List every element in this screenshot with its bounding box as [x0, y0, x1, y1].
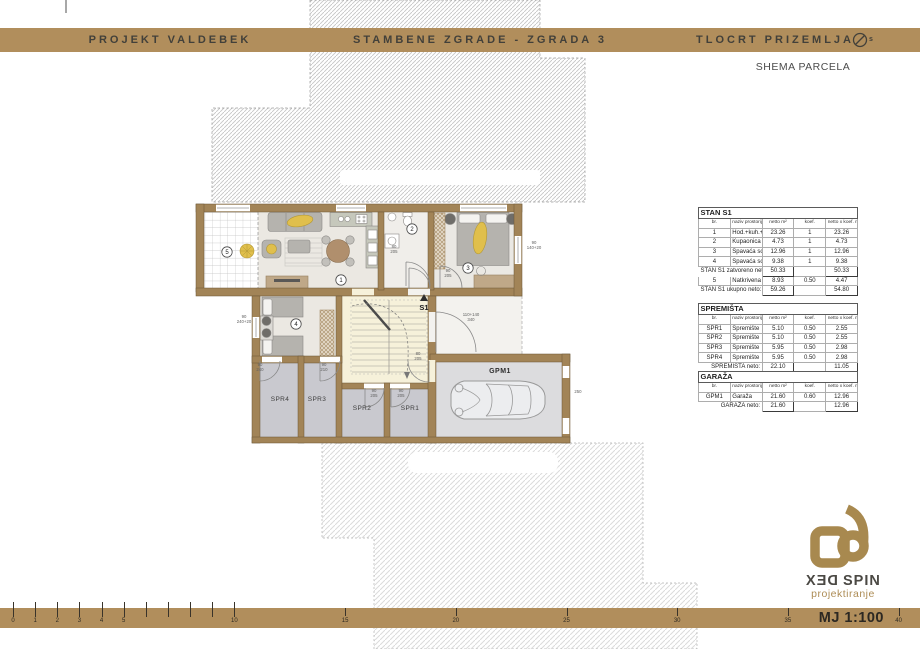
scale-label: MJ 1:100 — [794, 610, 884, 626]
table-cell: Natkrivena terasa — [730, 276, 762, 286]
dimension-label: 90140+20 — [527, 240, 542, 250]
scale-tick — [788, 608, 789, 616]
table-cell: 2.98 — [826, 343, 858, 353]
lamp — [262, 317, 271, 326]
table-cell: netto m² — [762, 383, 794, 393]
table-cell: SPR3 — [699, 343, 731, 353]
table-cell: 54.80 — [826, 286, 858, 296]
table-cell: br. — [699, 383, 731, 393]
building-title: STAMBENE ZGRADE - ZGRADA 3 — [335, 34, 625, 46]
table-cell: 5.10 — [762, 324, 794, 334]
table-cell: netto m² — [762, 315, 794, 325]
scale-tick-label: 40 — [895, 618, 902, 624]
scale-bar: 01234510152025303540 MJ 1:100 — [0, 608, 920, 628]
table-cell: 1 — [699, 228, 731, 238]
table-cell: 21.60 — [762, 392, 794, 402]
unit-label: S1 — [419, 303, 428, 312]
table-cell: 1 — [794, 257, 826, 267]
wardrobe — [320, 310, 334, 356]
table-cell: STAN S1 zatvoreno neto: — [699, 266, 763, 276]
table-cell: 50.33 — [762, 266, 794, 276]
room-label-spr4: SPR4 — [271, 396, 290, 403]
table-cell: 9.38 — [762, 257, 794, 267]
table-cell: 5.95 — [762, 353, 794, 363]
table-cell: SPR1 — [699, 324, 731, 334]
company-logo: DEX SPIN projektiranje — [797, 504, 889, 600]
table-cell — [794, 266, 826, 276]
room-label-spr2: SPR2 — [353, 405, 372, 412]
chaise — [288, 240, 310, 253]
scale-tick-label: 3 — [78, 618, 81, 624]
project-title: PROJEKT VALDEBEK — [55, 34, 285, 46]
table-cell: 5.10 — [762, 334, 794, 344]
table-cell — [794, 402, 826, 412]
table-cell: naziv prostorije — [730, 219, 762, 229]
dimension-label: 250 — [574, 389, 582, 394]
scale-tick — [35, 602, 36, 617]
table-cell: 50.33 — [826, 266, 858, 276]
table-cell: 21.60 — [762, 402, 794, 412]
scale-tick — [345, 608, 346, 616]
desk — [474, 275, 516, 289]
scale-tick — [13, 602, 14, 617]
table-cell: 0.50 — [794, 353, 826, 363]
table-cell: GPM1 — [699, 392, 731, 402]
table-cell: 8.93 — [762, 276, 794, 286]
table-cell: 3 — [699, 247, 731, 257]
scale-tick-label: 10 — [231, 618, 238, 624]
table-cell: naziv prostorije — [730, 315, 762, 325]
room-label-gpm1: GPM1 — [489, 368, 511, 375]
scale-tick-label: 1 — [33, 618, 36, 624]
table-cell: 0.60 — [794, 392, 826, 402]
tv-cabinet — [266, 276, 308, 289]
spr1-floor — [390, 389, 428, 437]
table-cell: netto x koef. m² — [826, 219, 858, 229]
chair — [346, 236, 354, 244]
table-cell: 2 — [699, 238, 731, 248]
table-cell: SPR4 — [699, 353, 731, 363]
table-cell: 2.55 — [826, 324, 858, 334]
table-cell: 4.47 — [826, 276, 858, 286]
table-cell: 4 — [699, 257, 731, 267]
table-cell: koef. — [794, 383, 826, 393]
scale-tick-label: 30 — [674, 618, 681, 624]
table-cell: SPR2 — [699, 334, 731, 344]
table-cell: netto m² — [762, 219, 794, 229]
chair — [346, 258, 354, 266]
table-cell: 59.26 — [762, 286, 794, 296]
drawing-sheet: S1 SPR4 SPR3 SPR2 SPR1 GPM1 12345 90240+… — [0, 0, 920, 649]
scale-tick — [168, 602, 169, 617]
table-cell: 0.50 — [794, 334, 826, 344]
chair — [322, 236, 330, 244]
stan-s1-table: STAN S1br.naziv prostorijenetto m²koef.n… — [698, 207, 858, 296]
scale-tick-label: 2 — [56, 618, 59, 624]
table-cell: 0.50 — [794, 324, 826, 334]
table-cell: 0.50 — [794, 343, 826, 353]
scale-tick — [79, 602, 80, 617]
table-cell — [794, 286, 826, 296]
scale-tick — [102, 602, 103, 617]
scale-tick-label: 20 — [452, 618, 459, 624]
table-cell: naziv prostorije — [730, 383, 762, 393]
table-title: SPREMIŠTA — [699, 304, 858, 315]
table-cell: GARAŽA neto: — [699, 402, 763, 412]
table-cell: 1 — [794, 238, 826, 248]
table-cell: 12.96 — [762, 247, 794, 257]
lamp — [262, 329, 271, 338]
table-cell: 12.96 — [826, 247, 858, 257]
garaza-table: GARAŽAbr.naziv prostorijenetto m²koef.ne… — [698, 371, 858, 412]
table-cell: Kupaonica — [730, 238, 762, 248]
dining-table — [327, 240, 350, 263]
table-cell: Spavaća soba — [730, 257, 762, 267]
armchair-cushion — [267, 244, 277, 254]
table-title: GARAŽA — [699, 372, 858, 383]
table-cell: 23.26 — [762, 228, 794, 238]
table-cell: 12.96 — [826, 402, 858, 412]
table-cell: 1 — [794, 228, 826, 238]
scale-tick-label: 0 — [11, 618, 14, 624]
table-cell: 12.96 — [826, 392, 858, 402]
table-cell: 5.95 — [762, 343, 794, 353]
table-cell: br. — [699, 315, 731, 325]
table-cell: 4.73 — [762, 238, 794, 248]
dimension-label: 90240+20 — [237, 314, 252, 324]
title-band: PROJEKT VALDEBEK STAMBENE ZGRADE - ZGRAD… — [0, 28, 920, 52]
tv — [274, 279, 300, 282]
sink — [388, 213, 396, 221]
scale-tick — [146, 602, 147, 617]
table-cell: Spremište — [730, 334, 762, 344]
table-cell: Hod.+kuh.+db+blag. — [730, 228, 762, 238]
table-cell: 2.98 — [826, 353, 858, 363]
stair-floor — [342, 296, 428, 383]
table-title: STAN S1 — [699, 208, 858, 219]
table-cell: Spremište — [730, 324, 762, 334]
compass-letter: s — [869, 36, 873, 43]
spr2-floor — [342, 389, 384, 437]
scale-tick — [234, 602, 235, 617]
table-cell: 0.50 — [794, 276, 826, 286]
scale-tick — [57, 602, 58, 617]
table-cell: br. — [699, 219, 731, 229]
table-cell: 9.38 — [826, 257, 858, 267]
chair — [322, 258, 330, 266]
table-cell: 1 — [794, 247, 826, 257]
room-label-spr1: SPR1 — [401, 405, 420, 412]
scale-tick-label: 5 — [122, 618, 125, 624]
table-cell: netto x koef. m² — [826, 315, 858, 325]
room-label-spr3: SPR3 — [308, 396, 327, 403]
logo-subtitle: projektiranje — [797, 588, 889, 600]
schema-label: SHEMA PARCELA — [742, 61, 864, 73]
table-cell: Garaža — [730, 392, 762, 402]
scale-tick — [899, 608, 900, 616]
sheet-title: TLOCRT PRIZEMLJA — [690, 34, 860, 46]
table-cell: 4.73 — [826, 238, 858, 248]
car — [451, 381, 545, 419]
logo-glyphs — [806, 504, 880, 572]
scale-tick — [567, 608, 568, 616]
scale-tick — [190, 602, 191, 617]
scale-tick — [456, 608, 457, 616]
scale-tick-label: 25 — [563, 618, 570, 624]
scale-tick — [212, 602, 213, 617]
scale-tick-label: 4 — [100, 618, 103, 624]
table-cell: koef. — [794, 219, 826, 229]
logo-wordmark: DEX SPIN — [797, 573, 889, 589]
scale-tick-label: 15 — [342, 618, 349, 624]
table-cell: STAN S1 ukupno neto: — [699, 286, 763, 296]
table-cell: koef. — [794, 315, 826, 325]
table-cell: 2.55 — [826, 334, 858, 344]
scale-ticks: 01234510152025303540 — [0, 608, 920, 628]
scale-tick-label: 35 — [785, 618, 792, 624]
table-cell: netto x koef. m² — [826, 383, 858, 393]
table-cell: 5 — [699, 276, 731, 286]
scale-tick — [677, 608, 678, 616]
table-cell: 23.26 — [826, 228, 858, 238]
entry-court-floor — [436, 296, 522, 354]
scale-tick — [124, 602, 125, 617]
north-compass-icon — [851, 31, 869, 49]
table-cell: Spavaća soba — [730, 247, 762, 257]
nightstand — [445, 214, 456, 225]
table-cell: Spremište — [730, 343, 762, 353]
table-cell: Spremište — [730, 353, 762, 363]
spremista-table: SPREMIŠTAbr.naziv prostorijenetto m²koef… — [698, 303, 858, 373]
closet — [434, 213, 445, 269]
